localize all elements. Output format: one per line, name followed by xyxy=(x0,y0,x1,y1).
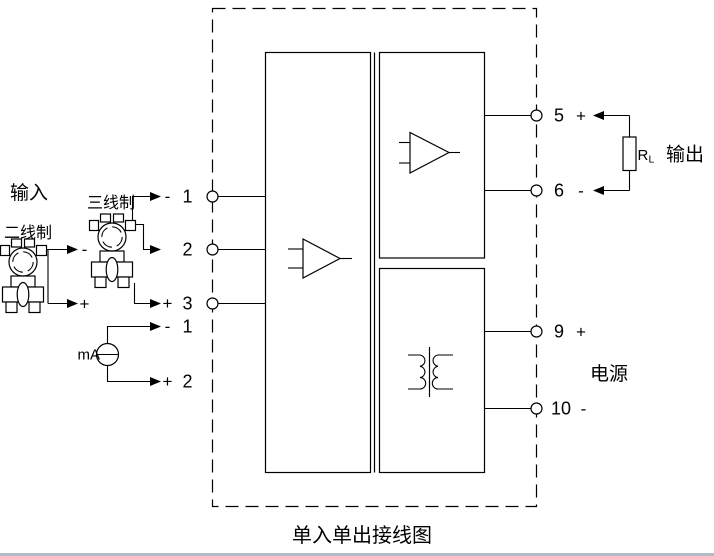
terminal-1-number: 1 xyxy=(182,187,192,207)
two-wire-plus-sign: + xyxy=(80,295,90,314)
amplifier-icon xyxy=(288,239,352,278)
arrow-right-icon xyxy=(150,377,161,386)
power-section-label: 电源 xyxy=(590,363,628,385)
two-wire-transmitter-icon xyxy=(1,239,47,313)
arrow-right-icon xyxy=(150,322,161,331)
terminal-3-number: 3 xyxy=(182,294,192,314)
diagram-svg: 输入 二线制 三线制 mA - + - 1 2 + 3 - 1 + 2 5 + … xyxy=(0,0,714,556)
terminal-3-circle xyxy=(207,298,218,309)
arrow-right-icon xyxy=(150,245,161,254)
three-wire-label: 三线制 xyxy=(87,194,135,212)
wiring-diagram: 输入 二线制 三线制 mA - + - 1 2 + 3 - 1 + 2 5 + … xyxy=(0,0,714,556)
load-resistor xyxy=(623,137,636,171)
terminal-5-number: 5 xyxy=(554,106,564,126)
two-wire-label: 二线制 xyxy=(4,224,52,242)
terminal-9-number: 9 xyxy=(554,322,564,342)
output-amplifier-icon xyxy=(399,133,460,174)
input-section-label: 输入 xyxy=(10,182,48,204)
power-module-box xyxy=(380,269,485,473)
three-wire-wiring xyxy=(133,192,162,308)
terminal-9-circle xyxy=(531,326,542,337)
ma-terminal-1-sign: - xyxy=(165,317,171,336)
arrow-right-icon xyxy=(150,192,161,201)
load-resistor-label: R xyxy=(638,147,649,164)
load-resistor-subscript: L xyxy=(649,154,655,166)
ma-terminal-1-number: 1 xyxy=(182,317,192,337)
right-terminals xyxy=(485,110,543,414)
arrow-left-icon xyxy=(593,186,604,195)
terminal-2-circle xyxy=(207,244,218,255)
left-terminals xyxy=(207,191,266,309)
arrow-left-icon xyxy=(593,111,604,120)
input-module-box xyxy=(266,53,371,473)
terminal-10-sign: - xyxy=(581,400,587,419)
terminal-9-sign: + xyxy=(576,323,586,342)
terminal-6-number: 6 xyxy=(554,181,564,201)
terminal-10-number: 10 xyxy=(551,399,571,419)
transformer-icon xyxy=(408,347,453,397)
diagram-title: 单入单出接线图 xyxy=(292,524,432,547)
terminal-3-sign: + xyxy=(163,294,173,313)
terminal-5-circle xyxy=(531,110,542,121)
terminal-5-sign: + xyxy=(576,107,586,126)
two-wire-minus-sign: - xyxy=(82,240,88,259)
output-load-loop xyxy=(593,111,636,195)
terminal-1-sign: - xyxy=(165,187,171,206)
arrow-right-icon xyxy=(67,299,78,308)
arrow-right-icon xyxy=(150,299,161,308)
terminal-10-circle xyxy=(531,403,542,414)
ma-terminal-2-sign: + xyxy=(163,372,173,391)
arrow-right-icon xyxy=(67,245,78,254)
terminal-1-circle xyxy=(207,191,218,202)
terminal-6-circle xyxy=(531,185,542,196)
terminal-2-number: 2 xyxy=(182,240,192,260)
two-wire-wiring xyxy=(47,245,79,308)
output-section-label: 输出 xyxy=(666,144,704,166)
three-wire-transmitter-icon xyxy=(90,214,136,288)
ma-terminal-2-number: 2 xyxy=(182,372,192,392)
terminal-6-sign: - xyxy=(578,182,584,201)
ma-source-label: mA xyxy=(78,347,101,364)
output-module-box xyxy=(380,53,485,259)
